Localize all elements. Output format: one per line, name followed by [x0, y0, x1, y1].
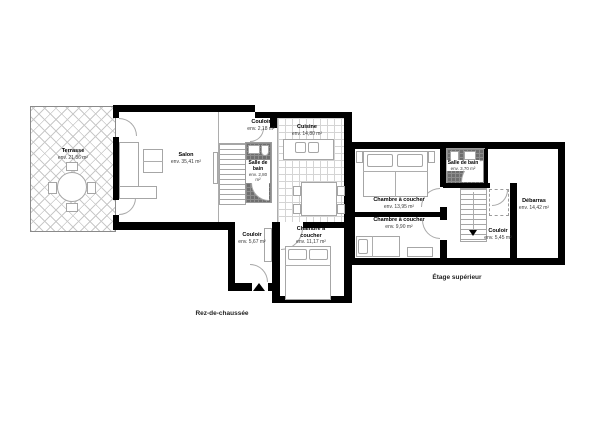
stair-direction-line	[473, 192, 474, 232]
floor-label-ground: Rez-de-chaussée	[195, 310, 248, 317]
furniture-line	[143, 161, 163, 162]
room-area: env. 2,80 m²	[247, 172, 269, 183]
dining-table	[301, 182, 337, 216]
wall	[348, 142, 565, 149]
chair	[293, 204, 301, 214]
room-name: Terrasse	[58, 148, 88, 155]
room-area: env. 14,80 m²	[292, 131, 322, 137]
pillow	[309, 249, 328, 260]
desk	[407, 247, 433, 257]
pillow	[397, 154, 423, 167]
chair	[293, 186, 301, 196]
door-arc	[422, 220, 440, 239]
pillow	[288, 249, 307, 260]
wall	[440, 207, 447, 220]
room-label-terrasse: Terrasse env. 21,86 m²	[58, 148, 88, 161]
nightstand	[356, 151, 363, 163]
furniture-line	[395, 171, 396, 197]
wall	[113, 105, 255, 112]
sofa	[119, 186, 157, 199]
stairs	[219, 143, 246, 205]
entrance-arrow	[253, 283, 265, 291]
terrace-chair	[87, 182, 96, 194]
wall	[440, 240, 447, 258]
room-label-salle-de-bain: Salle de bain env. 2,80 m²	[246, 160, 270, 183]
wall	[348, 142, 355, 265]
room-name: Chambre à coucher	[293, 226, 329, 239]
door-arc	[119, 198, 136, 215]
room-label-salle-de-bain-upper: Salle de bain env. 3,70 m²	[447, 160, 480, 171]
chair	[337, 186, 345, 196]
chair	[337, 204, 345, 214]
room-area: env. 35,41 m²	[171, 159, 201, 165]
room-label-chambre: Chambre à coucher env. 11,17 m²	[293, 226, 329, 245]
door-arc	[250, 264, 268, 282]
room-name: Cuisine	[292, 124, 322, 131]
wall	[228, 222, 235, 291]
pillow	[367, 154, 393, 167]
room-label-cuisine: Cuisine env. 14,80 m²	[292, 124, 322, 137]
room-label-couloir: Couloir env. 5,67 m²	[238, 232, 265, 245]
furniture-line	[285, 265, 331, 266]
terrace-table	[57, 172, 87, 202]
terrace-chair	[66, 203, 78, 212]
wall	[113, 215, 119, 230]
toilet	[261, 145, 269, 156]
room-label-debarras: Débarras env. 14,42 m²	[519, 198, 549, 211]
room-area: env. 13,95 m²	[373, 204, 424, 210]
kitchen-sink	[295, 142, 306, 153]
room-name: Couloir	[484, 228, 511, 235]
room-area: env. 11,17 m²	[293, 239, 329, 245]
room-name: Salle de bain	[247, 160, 269, 172]
furniture-line	[372, 236, 373, 257]
wall	[510, 183, 517, 258]
room-area: env. 21,86 m²	[58, 155, 88, 161]
nightstand	[428, 151, 435, 163]
door-arc	[119, 118, 137, 136]
sink	[464, 151, 476, 160]
wall	[558, 142, 565, 265]
room-area: env. 5,67 m²	[238, 239, 265, 245]
partition-line	[277, 118, 278, 222]
room-name: Salon	[171, 152, 201, 159]
room-area: env. 3,70 m²	[448, 166, 479, 171]
pillow	[358, 239, 368, 254]
wall	[113, 222, 232, 230]
room-area: env. 14,42 m²	[519, 205, 549, 211]
room-name: Débarras	[519, 198, 549, 205]
room-label-chambre1: Chambre à coucher env. 13,95 m²	[373, 197, 424, 210]
floor-label-upper: Étage supérieur	[432, 274, 481, 281]
room-name: Chambre à coucher	[373, 217, 424, 224]
terrace-chair	[48, 182, 57, 194]
terrace-chair	[66, 162, 78, 171]
floor-plan: Terrasse env. 21,86 m² Salon env. 35,41 …	[0, 0, 600, 424]
wall	[484, 149, 488, 187]
sink	[248, 145, 260, 154]
wall	[230, 283, 252, 291]
wall	[272, 222, 280, 303]
room-label-couloir-haut: Couloir env. 2,18 m²	[247, 119, 274, 132]
room-area: env. 5,45 m²	[484, 235, 511, 241]
wall	[348, 258, 565, 265]
room-name: Couloir	[247, 119, 274, 126]
room-label-chambre2: Chambre à coucher env. 9,90 m²	[373, 217, 424, 230]
room-label-couloir-upper: Couloir env. 5,45 m²	[484, 228, 511, 241]
wall	[113, 105, 119, 118]
room-label-salon: Salon env. 35,41 m²	[171, 152, 201, 165]
room-area: env. 9,90 m²	[373, 224, 424, 230]
kitchen-sink	[308, 142, 319, 153]
room-name: Chambre à coucher	[373, 197, 424, 204]
room-name: Couloir	[238, 232, 265, 239]
stair-arrow	[469, 230, 477, 236]
room-area: env. 2,18 m²	[247, 126, 274, 132]
